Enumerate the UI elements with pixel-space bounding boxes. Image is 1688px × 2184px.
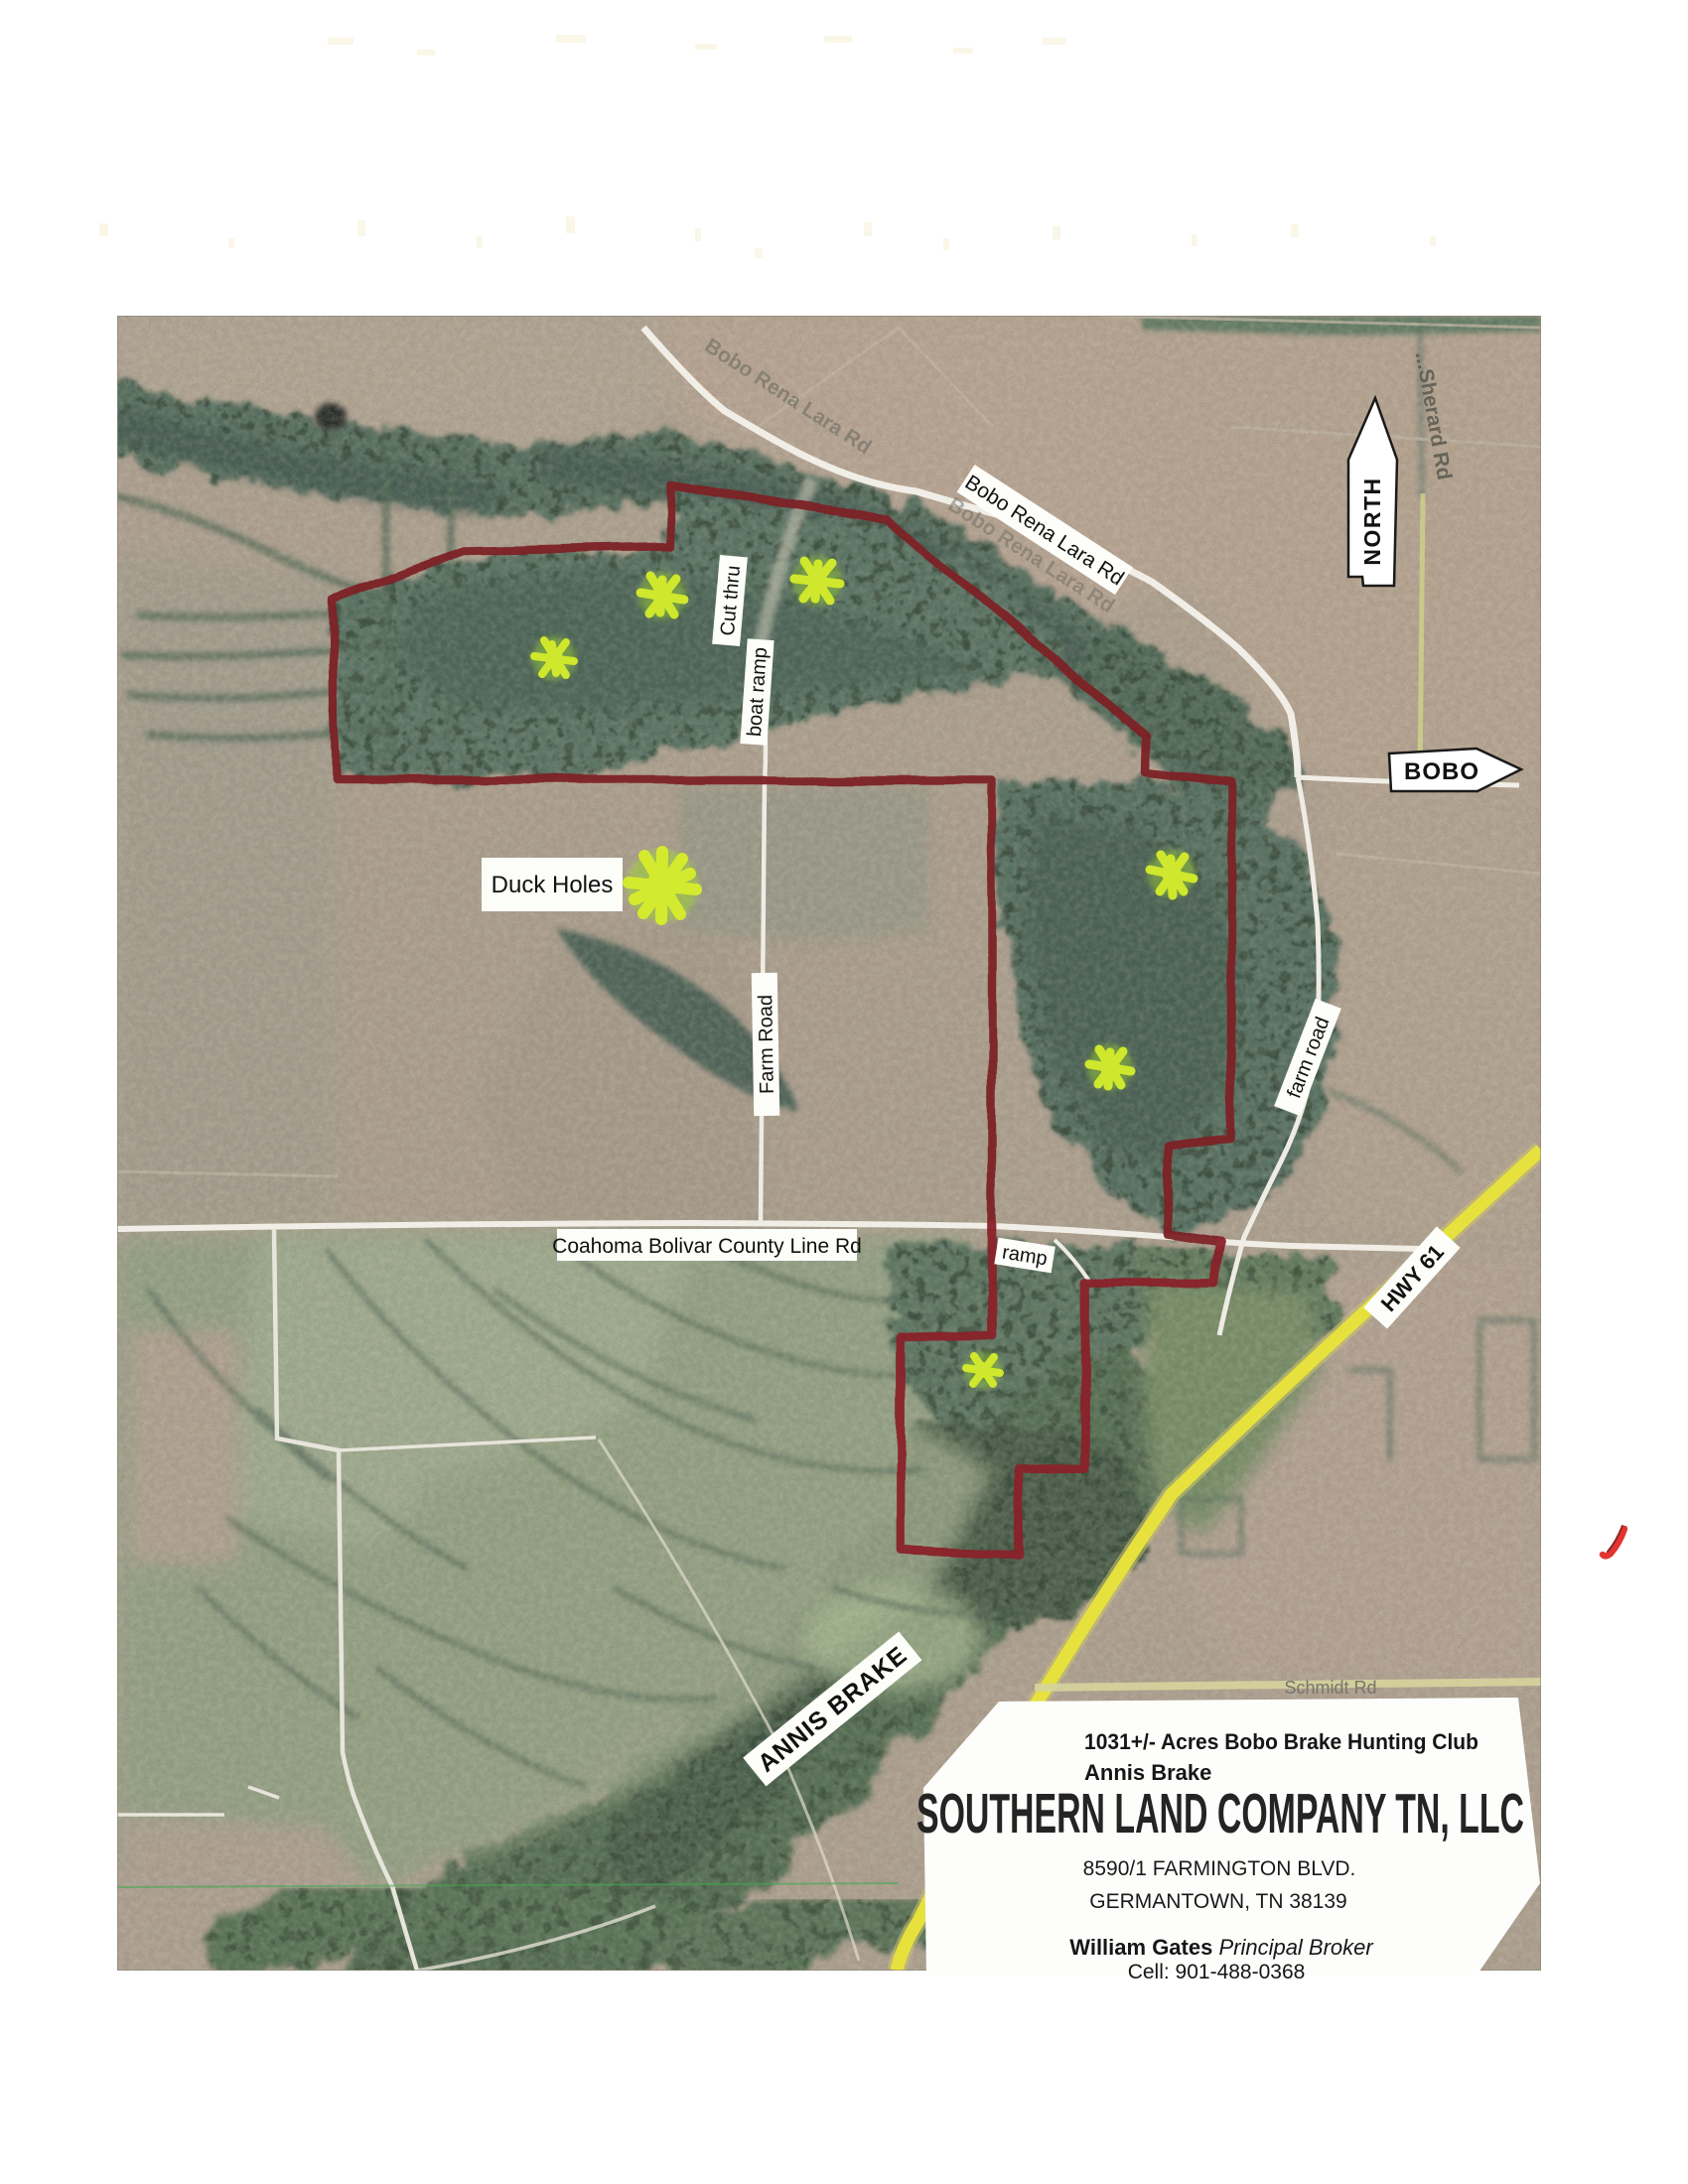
svg-text:Schmidt Rd: Schmidt Rd: [1284, 1678, 1376, 1698]
svg-text:Farm Road: Farm Road: [755, 995, 778, 1094]
svg-text:William Gates Principal Broker: William Gates Principal Broker: [1069, 1935, 1374, 1960]
svg-text:Duck Holes: Duck Holes: [492, 872, 614, 898]
svg-text:SOUTHERN LAND COMPANY TN, LLC: SOUTHERN LAND COMPANY TN, LLC: [916, 1782, 1524, 1845]
svg-text:Coahoma Bolivar County Line Rd: Coahoma Bolivar County Line Rd: [552, 1235, 862, 1258]
svg-text:Cell: 901-488-0368: Cell: 901-488-0368: [1128, 1961, 1306, 1983]
svg-text:NORTH: NORTH: [1359, 477, 1385, 565]
svg-text:1031+/- Acres Bobo Brake Hunti: 1031+/- Acres Bobo Brake Hunting Club: [1084, 1729, 1478, 1754]
svg-text:BOBO: BOBO: [1404, 758, 1479, 785]
svg-text:GERMANTOWN, TN 38139: GERMANTOWN, TN 38139: [1089, 1890, 1346, 1913]
svg-text:8590/1 FARMINGTON BLVD.: 8590/1 FARMINGTON BLVD.: [1083, 1857, 1356, 1880]
